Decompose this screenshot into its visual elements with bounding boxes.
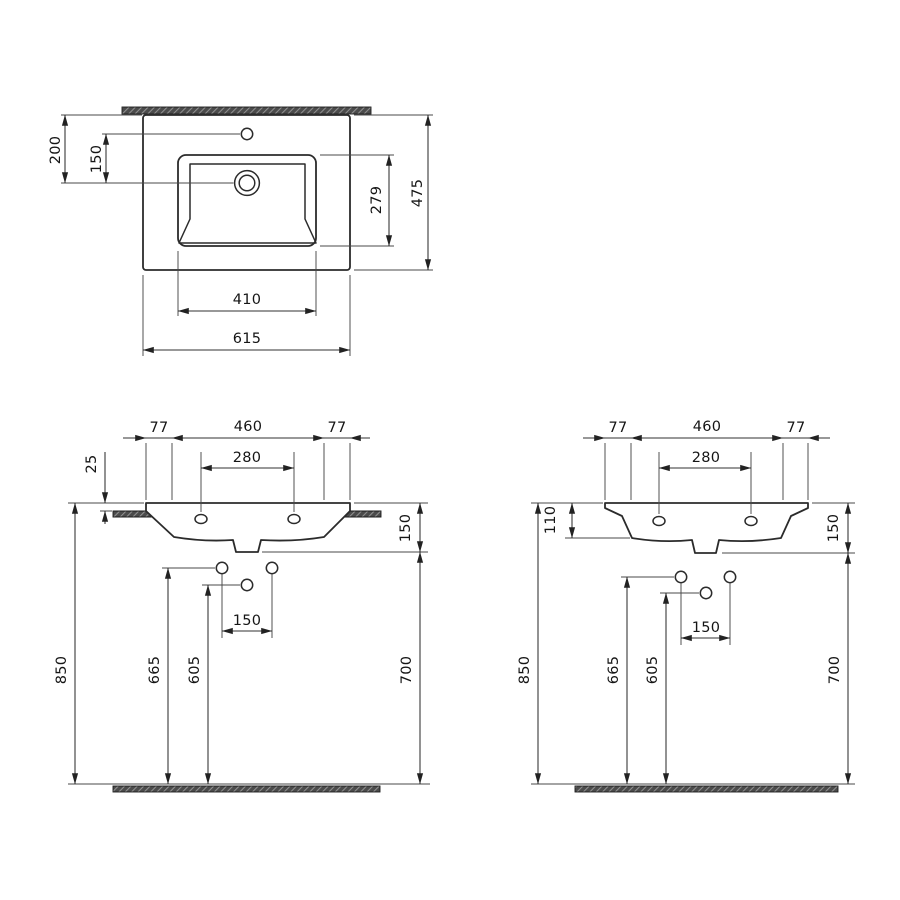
drain-inner-ring [239, 175, 255, 191]
fixing-hole-right [288, 515, 300, 524]
wall-overhang-right-label: 77 [786, 420, 805, 436]
drain-outer-ring [235, 171, 260, 196]
front-wall-extension-lines [531, 443, 855, 784]
sink-profile [605, 503, 808, 553]
countertop-overhang-left-label: 77 [149, 420, 168, 436]
wall-outlet-height-label: 700 [827, 656, 843, 685]
plan-basin-width-label: 410 [233, 292, 262, 308]
front-view-countertop: 77 460 77 280 25 850 665 605 700 150 150 [54, 419, 430, 792]
wall-supply-spacing-label: 150 [692, 620, 721, 636]
fixing-hole-left [653, 517, 665, 526]
waste-connection [241, 579, 252, 590]
fixing-hole-right [745, 517, 757, 526]
wall-supply-height-label: 665 [606, 656, 622, 685]
wall-overhang-left-label: 77 [608, 420, 627, 436]
technical-drawing-page: 200 150 279 475 410 615 77 460 77 28 [0, 0, 900, 900]
plan-edge-to-drain-label: 200 [48, 136, 64, 165]
countertop-outlet-height-label: 700 [399, 656, 415, 685]
wall-basin-span-label: 460 [693, 419, 722, 435]
plan-extension-lines [61, 115, 433, 356]
countertop-supply-height-label: 665 [147, 656, 163, 685]
supply-connection-right [724, 571, 735, 582]
wall-hole-spacing-label: 280 [692, 450, 721, 466]
basin-rim [178, 155, 316, 246]
sink-profile [146, 503, 350, 552]
wall-rim-height-label: 850 [517, 656, 533, 685]
plan-faucet-to-drain-label: 150 [89, 145, 105, 174]
plan-overall-depth-label: 475 [410, 179, 426, 208]
floor-bar [575, 786, 838, 792]
front-view-wall-mounted: 77 460 77 280 110 850 665 605 700 150 15… [517, 419, 855, 792]
supply-connection-right [266, 562, 277, 573]
countertop-rim-to-outlet-label: 150 [398, 514, 414, 543]
wall-rim-to-outlet-label: 150 [826, 514, 842, 543]
wall-body-height-label: 110 [543, 506, 559, 535]
countertop-hole-spacing-label: 280 [233, 450, 262, 466]
supply-connection-left [216, 562, 227, 573]
washbasin-dimension-drawing: 200 150 279 475 410 615 77 460 77 28 [0, 0, 900, 900]
countertop-rim-height-label: 850 [54, 656, 70, 685]
faucet-hole [241, 128, 252, 139]
waste-connection [700, 587, 711, 598]
countertop-rim-above-counter-label: 25 [84, 454, 100, 473]
wall-section-bar [122, 107, 371, 114]
floor-bar [113, 786, 380, 792]
countertop-supply-spacing-label: 150 [233, 613, 262, 629]
countertop-trap-height-label: 605 [187, 656, 203, 685]
plan-overall-width-label: 615 [233, 331, 262, 347]
countertop-overhang-right-label: 77 [327, 420, 346, 436]
fixing-hole-left [195, 515, 207, 524]
plan-basin-depth-label: 279 [369, 186, 385, 215]
countertop-basin-span-label: 460 [234, 419, 263, 435]
supply-connection-left [675, 571, 686, 582]
plan-view: 200 150 279 475 410 615 [48, 107, 433, 356]
wall-trap-height-label: 605 [645, 656, 661, 685]
